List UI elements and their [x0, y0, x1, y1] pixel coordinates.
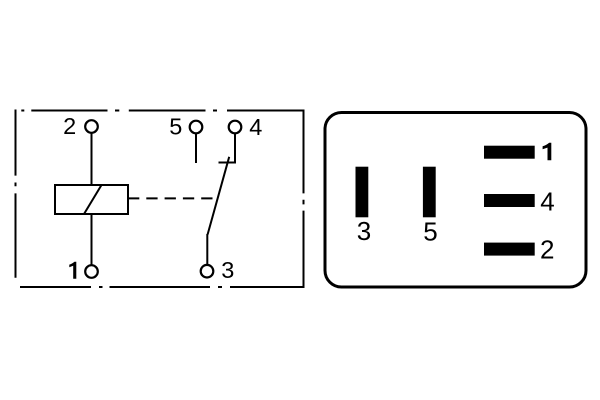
svg-text:5: 5 — [169, 113, 182, 139]
svg-text:2: 2 — [540, 235, 554, 265]
svg-text:4: 4 — [540, 186, 554, 216]
svg-text:2: 2 — [63, 113, 76, 139]
svg-text:4: 4 — [249, 114, 262, 140]
svg-text:3: 3 — [221, 257, 234, 283]
svg-text:5: 5 — [423, 217, 437, 247]
svg-text:3: 3 — [357, 216, 371, 246]
